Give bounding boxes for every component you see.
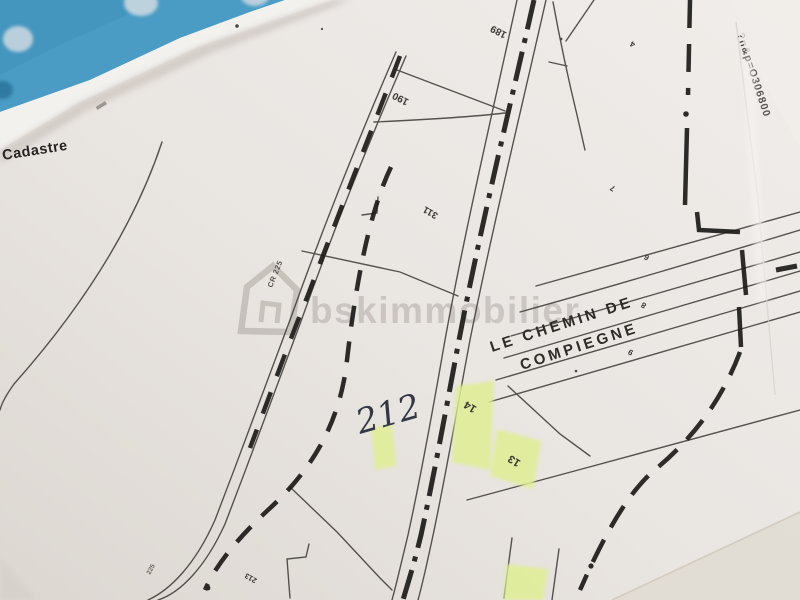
cadastre-map-photo: bskimmobilier	[0, 0, 800, 600]
highlight-parcel-14	[452, 381, 494, 470]
photo-canvas: bskimmobilier	[0, 0, 800, 600]
boundary-dot	[206, 586, 211, 591]
binder-hole	[3, 26, 33, 52]
highlight-parcel-bottom	[503, 564, 548, 600]
